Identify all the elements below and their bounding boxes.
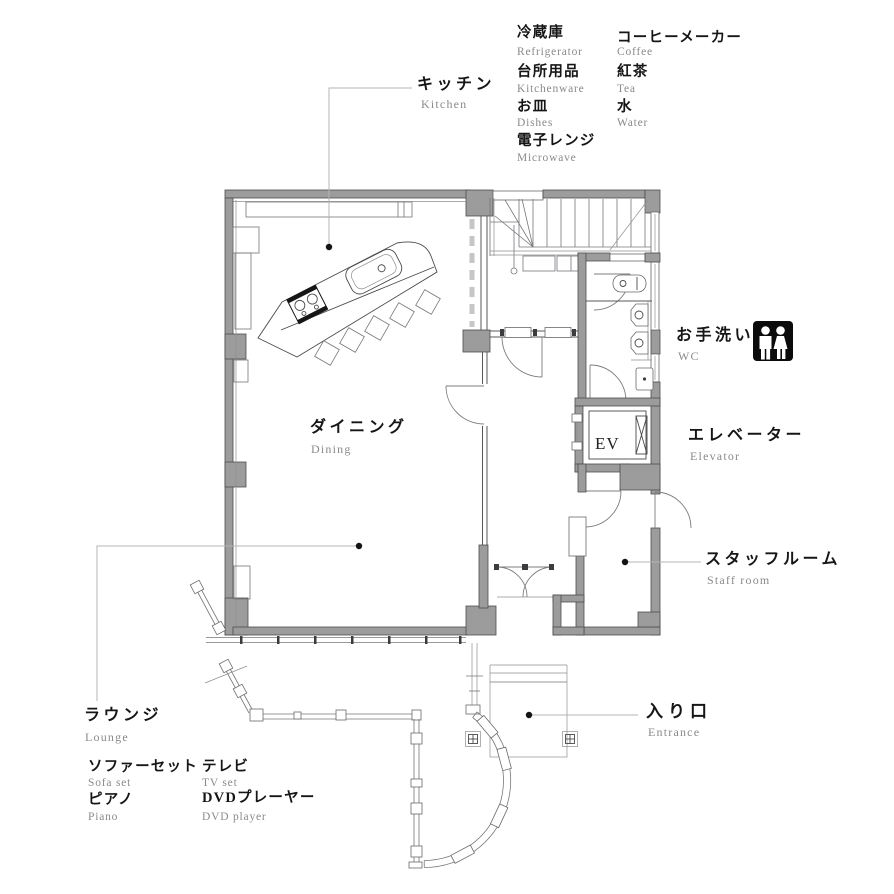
label-lounge-jp: ラウンジ: [84, 708, 162, 725]
legend-microwave-en: Microwave: [517, 152, 577, 164]
kitchen-island: [258, 242, 440, 365]
toilet-icon: [613, 275, 646, 292]
label-wc-en: WC: [678, 350, 700, 363]
legend-tv-jp: テレビ: [202, 760, 249, 775]
legend-kitchenware-en: Kitchenware: [517, 83, 585, 95]
legend-refrigerator-en: Refrigerator: [517, 46, 583, 58]
label-kitchen-jp: キッチン: [417, 77, 495, 94]
legend-refrigerator-jp: 冷蔵庫: [517, 26, 564, 41]
leader-dot-entrance: [526, 712, 532, 718]
label-lounge-en: Lounge: [85, 731, 129, 744]
label-kitchen-en: Kitchen: [421, 98, 467, 111]
floor-plan-page: EV: [0, 0, 894, 894]
entrance-area: [424, 643, 577, 868]
sink-icon: [631, 304, 648, 326]
label-staff-room-en: Staff room: [707, 574, 770, 587]
door-staff-left: [585, 491, 621, 527]
leader-dot-kitchen: [326, 244, 332, 250]
legend-sofa-set-jp: ソファーセット: [88, 760, 198, 775]
door-corridor: [502, 337, 542, 377]
label-entrance-en: Entrance: [648, 726, 700, 739]
label-wc-jp: お手洗い: [676, 328, 754, 345]
column-post-icon: [466, 732, 481, 747]
legend-water-en: Water: [617, 117, 648, 129]
staircase: [490, 198, 651, 274]
label-entrance-jp: 入り口: [646, 703, 712, 721]
column-post-icon: [563, 732, 578, 747]
corridor-partitions: [463, 216, 578, 608]
bar-stools: [315, 290, 441, 366]
label-elevator-jp: エレベーター: [688, 428, 805, 445]
legend-kitchenware-jp: 台所用品: [517, 65, 580, 80]
leader-dot-lounge: [356, 543, 362, 549]
elevator-equipment-icon: [636, 416, 647, 454]
stove-icon: [287, 285, 328, 324]
elevator-car-label: EV: [595, 434, 620, 453]
legend-tea-jp: 紅茶: [617, 65, 648, 80]
kitchen-counters: [233, 202, 412, 599]
curved-wall: [424, 712, 511, 868]
label-dining-jp: ダイニング: [310, 420, 408, 437]
legend-dishes-jp: お皿: [517, 100, 548, 115]
water-heater-icon: [636, 368, 653, 390]
leader-kitchen: [329, 88, 412, 247]
door-staff-right: [655, 492, 691, 528]
label-dining-en: Dining: [311, 443, 352, 456]
window-band-south: [206, 636, 466, 644]
double-door-entrance: [494, 564, 554, 597]
sink-icon: [631, 332, 648, 354]
door-wc-lower: [590, 365, 626, 401]
legend-coffee-jp: コーヒーメーカー: [617, 31, 742, 46]
refrigerator-icon: [233, 227, 259, 253]
wc-restroom-icon: [752, 320, 794, 363]
legend-piano-jp: ピアノ: [88, 793, 134, 808]
legend-coffee-en: Coffee: [617, 46, 653, 58]
kitchen-sink-icon: [343, 246, 405, 297]
leader-dot-staff-room: [622, 559, 628, 565]
legend-dvd-player-jp: DVDプレーヤー: [202, 791, 316, 806]
staff-cabinet: [569, 517, 586, 556]
legend-water-jp: 水: [617, 100, 633, 115]
label-elevator-en: Elevator: [690, 450, 740, 463]
legend-microwave-jp: 電子レンジ: [517, 134, 596, 149]
legend-tea-en: Tea: [617, 83, 636, 95]
door-opening: [479, 384, 489, 426]
door-dining: [446, 386, 484, 424]
legend-tv-en: TV set: [202, 777, 238, 789]
legend-sofa-set-en: Sofa set: [88, 777, 131, 789]
entrance-porch: [490, 682, 567, 757]
label-staff-room-jp: スタッフルーム: [705, 552, 841, 569]
legend-dishes-en: Dishes: [517, 117, 553, 129]
legend-dvd-player-en: DVD player: [202, 811, 267, 823]
legend-piano-en: Piano: [88, 811, 118, 823]
